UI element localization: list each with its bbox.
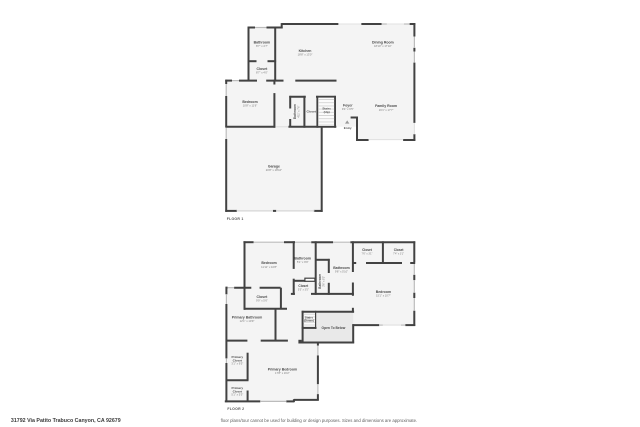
svg-text:Foyer: Foyer xyxy=(343,104,353,108)
svg-text:8'7" x 4'7": 8'7" x 4'7" xyxy=(256,44,268,48)
svg-text:(Down): (Down) xyxy=(304,319,314,323)
svg-text:5'5" x 3'5": 5'5" x 3'5" xyxy=(298,288,309,291)
svg-text:Primary Bedroom: Primary Bedroom xyxy=(268,367,297,371)
svg-text:Bathroom: Bathroom xyxy=(318,274,322,289)
svg-text:7'4" x 3'1": 7'4" x 3'1" xyxy=(393,252,404,255)
svg-text:7'6" x 3'1": 7'6" x 3'1" xyxy=(362,252,373,255)
svg-text:9'4" x 6'5": 9'4" x 6'5" xyxy=(342,107,354,111)
svg-text:Closet: Closet xyxy=(257,295,269,299)
svg-text:Closet: Closet xyxy=(257,67,269,71)
svg-text:8'7" x 4'0": 8'7" x 4'0" xyxy=(256,70,268,74)
svg-text:3'1" x 9'5": 3'1" x 9'5" xyxy=(231,362,243,366)
svg-text:Dining Room: Dining Room xyxy=(372,40,394,44)
svg-text:Bathroom: Bathroom xyxy=(333,266,350,270)
svg-text:5'1" x 9'9": 5'1" x 9'9" xyxy=(297,260,309,264)
svg-text:Bathroom: Bathroom xyxy=(254,41,271,45)
svg-text:Bathroom: Bathroom xyxy=(293,104,297,119)
svg-text:Bedroom: Bedroom xyxy=(261,261,276,265)
svg-text:18'10" x 17'10": 18'10" x 17'10" xyxy=(374,44,392,48)
svg-text:Closet: Closet xyxy=(306,109,315,113)
svg-text:Bedroom: Bedroom xyxy=(376,290,391,294)
svg-text:9'9" x 5'6": 9'9" x 5'6" xyxy=(256,299,268,303)
svg-text:Bedroom: Bedroom xyxy=(242,100,257,104)
svg-text:floor plans/tour cannot be use: floor plans/tour cannot be used for buil… xyxy=(221,418,418,423)
svg-text:10'8" x 11'6": 10'8" x 11'6" xyxy=(243,104,258,108)
svg-text:4'11" x 7'6": 4'11" x 7'6" xyxy=(298,106,301,118)
svg-text:16'1" x 17'7": 16'1" x 17'7" xyxy=(379,108,394,112)
svg-text:Garage: Garage xyxy=(268,165,280,169)
svg-text:Closet: Closet xyxy=(298,284,309,288)
svg-text:9'8" x 5'10": 9'8" x 5'10" xyxy=(335,269,348,273)
svg-text:(Up): (Up) xyxy=(324,110,330,114)
svg-text:Family Room: Family Room xyxy=(375,104,397,108)
svg-text:15'1" x 10'7": 15'1" x 10'7" xyxy=(376,294,391,298)
svg-text:11'11" x 10'8": 11'11" x 10'8" xyxy=(261,265,277,269)
svg-text:17'8" x 16'2": 17'8" x 16'2" xyxy=(275,371,290,375)
svg-text:20'8" x 18'10": 20'8" x 18'10" xyxy=(266,168,282,172)
svg-text:31792 Via Patito Trabuco Canyo: 31792 Via Patito Trabuco Canyon, CA 9267… xyxy=(11,418,121,424)
svg-text:FLOOR 1: FLOOR 1 xyxy=(227,217,244,221)
svg-text:18'8" x 13'0": 18'8" x 13'0" xyxy=(298,53,313,57)
svg-text:Entry: Entry xyxy=(344,126,352,130)
svg-text:Closet: Closet xyxy=(394,248,405,252)
svg-text:12'1" x 10'9": 12'1" x 10'9" xyxy=(240,319,255,323)
svg-text:Open To Below: Open To Below xyxy=(322,326,346,330)
svg-text:Kitchen: Kitchen xyxy=(299,49,312,53)
svg-text:Primary Bathroom: Primary Bathroom xyxy=(232,316,263,320)
svg-text:5'1" x 5'5": 5'1" x 5'5" xyxy=(231,392,243,396)
svg-text:3'6" x 8'3": 3'6" x 8'3" xyxy=(323,276,326,287)
svg-text:FLOOR 2: FLOOR 2 xyxy=(227,407,244,411)
svg-text:Closet: Closet xyxy=(362,248,373,252)
svg-text:Bathroom: Bathroom xyxy=(294,257,311,261)
